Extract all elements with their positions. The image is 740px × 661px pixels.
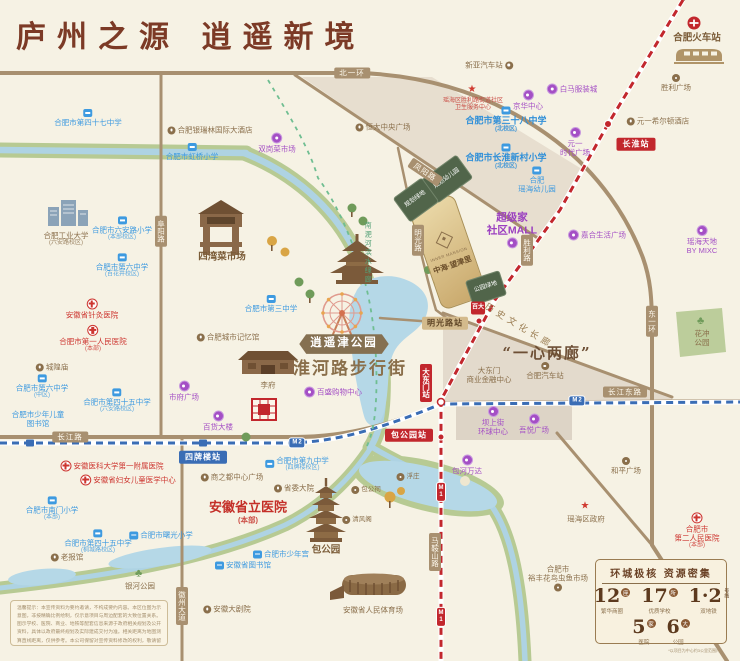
- label-hongqiao-primary: 合肥市虹桥小学: [166, 143, 219, 161]
- label-xiaoyaojin-park: 逍遥津公园: [299, 334, 389, 354]
- label-lifu: 李府: [261, 381, 276, 390]
- label-yaohai-kindergarten: 合肥瑶海幼儿园: [518, 167, 556, 194]
- label-shengwei: 省委大院: [274, 484, 314, 493]
- label-provincial-library: 安徽省图书馆: [215, 561, 271, 570]
- label-wuyue-plaza: 吾悦广场: [519, 414, 549, 435]
- label-baogongci: 包公祠: [351, 486, 381, 494]
- label-huachong-park: 花冲公园: [695, 317, 710, 347]
- label-shengli-plaza: 胜利广场: [661, 74, 691, 92]
- station-dadongmen: 大东门站: [420, 364, 432, 402]
- station-sipailou: 四牌楼站: [179, 451, 227, 464]
- label-no6-middle-central: 合肥市第六中学(中区): [16, 374, 69, 399]
- book-icon: [113, 388, 122, 396]
- label-school-3: 合肥市第三中学: [245, 295, 298, 313]
- book-icon: [118, 216, 127, 224]
- map-canvas: 庐州之源 逍遥新境 INNER MANSION 中海·望津里 规划幼儿园 规划绿…: [0, 0, 740, 661]
- label-children-library: 合肥市少年儿童图书馆: [12, 410, 65, 428]
- spot-icon: [51, 553, 59, 561]
- book-icon: [265, 460, 274, 468]
- label-xinya-bus: 新亚汽车站: [465, 61, 513, 70]
- road-beiyihuan: 北一环: [334, 68, 370, 79]
- shop-icon: [568, 230, 579, 241]
- book-icon: [533, 167, 542, 175]
- book-icon: [188, 143, 197, 151]
- label-nanmen-primary: 合肥市南门小学(本部): [26, 496, 79, 521]
- label-yinruilin-hotel: 合肥银瑞林国际大酒店: [168, 126, 253, 135]
- label-shifu-plaza: 市府广场: [169, 381, 199, 402]
- book-icon: [84, 109, 93, 117]
- stats-card-title: 环城极核 资源密集: [602, 565, 720, 584]
- stat-schools: 17所 优质学校: [641, 587, 677, 615]
- shop-icon: [506, 238, 517, 249]
- shop-icon: [696, 225, 707, 236]
- shop-icon: [179, 381, 190, 392]
- metro1-badge-south: M1: [436, 607, 446, 627]
- spot-icon: [622, 457, 630, 465]
- label-baihuo-building: 百货大楼: [203, 411, 233, 432]
- spot-icon: [201, 473, 209, 481]
- spot-icon: [541, 362, 549, 370]
- spot-icon: [505, 61, 513, 69]
- label-city-memory: 合肥城市记忆馆: [197, 333, 260, 342]
- cross-icon: [80, 475, 91, 486]
- spot-icon: [36, 363, 44, 371]
- spot-icon: [197, 333, 205, 341]
- metro2-badge-east: M2: [568, 395, 585, 406]
- cross-icon: [692, 512, 703, 523]
- label-siwan-market: 四湾菜市场: [198, 251, 246, 262]
- book-icon: [501, 144, 510, 152]
- label-yuanyi-times: 元一时代广场: [560, 127, 590, 157]
- label-hengda-plaza: 恒大中央广场: [356, 123, 411, 132]
- label-school-45a: 合肥市第四十五中学(六安路校区): [83, 388, 151, 413]
- label-grand-theater: 安徽大剧院: [203, 605, 251, 614]
- label-hfut: 合肥工业大学(六安路校区): [44, 231, 89, 247]
- label-hilton: 元一希尔顿酒店: [627, 117, 690, 126]
- label-riverside-corridor: 南淝河滨水绿廊: [363, 222, 371, 285]
- label-shuguang-primary: 合肥市曙光小学: [129, 531, 193, 540]
- book-icon: [215, 561, 224, 569]
- star-icon: [467, 86, 478, 97]
- road-fuyanglu: 阜阳路: [155, 216, 167, 247]
- shop-icon: [488, 406, 499, 417]
- page-title: 庐州之源 逍遥新境: [16, 12, 365, 56]
- shop-icon: [304, 387, 315, 398]
- label-no6-middle: 合肥市第六中学(百花井校区): [96, 253, 149, 278]
- book-icon: [38, 374, 47, 382]
- stat-metro-lines: 1·2号线 双地铁: [689, 587, 729, 615]
- shop-icon: [547, 84, 558, 95]
- label-dadongmen-finance: 大东门商业金融中心: [467, 366, 512, 384]
- spot-icon: [168, 126, 176, 134]
- label-school-47: 合肥市第四十七中学: [54, 109, 122, 127]
- label-zhenjiu-hospital: 安徽省针灸医院: [66, 299, 119, 320]
- book-icon: [253, 550, 262, 558]
- metro2-badge-west: M2: [288, 437, 305, 448]
- station-baogongyuan: 包公园站: [385, 429, 433, 442]
- road-huizhoudadao: 徽州大道: [176, 587, 188, 625]
- stat-business-circles: 12座 繁华商圈: [594, 587, 630, 615]
- baida-logo: 百大: [471, 302, 485, 315]
- cross-icon: [61, 461, 72, 472]
- label-hefei-railway: 合肥火车站: [673, 32, 721, 43]
- shop-icon: [462, 455, 473, 466]
- label-yufeng-market: 合肥市裕丰花鸟虫鱼市场: [528, 565, 588, 592]
- label-fuzhuang: 浮庄: [397, 473, 420, 481]
- book-icon: [118, 253, 127, 261]
- metro1-badge-north: M1: [436, 482, 446, 502]
- book-icon: [267, 295, 276, 303]
- disclaimer-text: 温馨提示：本宣传资料为要约邀请，不构成要约内容。本区位图为示意图，非按精确比例绘…: [10, 600, 168, 646]
- label-shuanggang-market: 双岗菜市场: [258, 133, 296, 154]
- label-youth-palace: 合肥市少年宫: [253, 550, 309, 559]
- book-icon: [129, 531, 138, 539]
- road-dongyihuan: 东一环: [646, 306, 658, 337]
- label-women-children-center: 安徽省妇女儿童医学中心: [80, 475, 176, 486]
- book-icon: [94, 529, 103, 537]
- cross-icon: [88, 325, 99, 336]
- label-heping-plaza: 和平广场: [611, 457, 641, 475]
- spot-icon: [203, 605, 211, 613]
- road-maanshanlu: 马鞍山路: [429, 533, 441, 571]
- spot-icon: [627, 117, 635, 125]
- label-jiahe-plaza: 嘉合生活广场: [568, 230, 626, 241]
- shop-icon: [529, 414, 540, 425]
- label-parkson: 百盛购物中心: [304, 387, 362, 398]
- label-school-9: 合肥市第九中学(四牌楼校区): [265, 456, 329, 472]
- label-anyi-hospital: 安徽医科大学第一附属医院: [61, 461, 164, 472]
- label-mixc: 瑶海天地BY MIXC: [687, 225, 718, 255]
- label-shangzhidu: 商之都中心广场: [201, 473, 264, 482]
- label-qingfengge: 清风阁: [342, 516, 372, 524]
- road-changjiangdonglu: 长江东路: [603, 387, 647, 398]
- label-luanlu-primary: 合肥市六安路小学(本部校区): [92, 216, 152, 241]
- stat-hospitals: 5家 医院: [632, 618, 655, 646]
- label-baogongyuan: 包公园: [312, 544, 341, 555]
- label-chenghuangmiao: 城隍庙: [36, 363, 69, 372]
- road-shenglilu: 胜利路: [521, 235, 533, 266]
- label-school-38: 合肥市第三十八中学(北校区): [465, 107, 546, 134]
- spot-icon: [342, 516, 350, 524]
- label-yaohai-gov: 瑶海区政府: [567, 503, 605, 524]
- project-logo-icon: [435, 231, 452, 248]
- label-school-45b: 合肥市第四十五中学(桐城路校区): [64, 529, 132, 554]
- label-stadium: 安徽省人民体育场: [343, 606, 403, 615]
- book-icon: [48, 496, 57, 504]
- station-mingguanglu: 明光路站: [422, 317, 468, 330]
- label-hefei-bus: 合肥汽车站: [526, 362, 564, 380]
- book-icon: [501, 107, 510, 115]
- map-labels: 庐州之源 逍遥新境 INNER MANSION 中海·望津里 规划幼儿园 规划绿…: [0, 0, 740, 661]
- label-yinhe-park: 银河公园: [125, 570, 155, 591]
- tree-icon: [697, 317, 707, 328]
- road-changjianglu: 长江路: [52, 432, 88, 443]
- spot-icon: [672, 74, 680, 82]
- label-baima-city: 白马服装城: [547, 84, 598, 95]
- cross-icon: [87, 299, 98, 310]
- station-changhuai: 长淮站: [617, 138, 656, 151]
- star-icon: [581, 503, 592, 514]
- label-huaihe-road: 淮河路步行街: [293, 359, 407, 379]
- spot-icon: [274, 484, 282, 492]
- spot-icon: [356, 123, 364, 131]
- label-first-people-hospital: 合肥市第一人民医院(本部): [59, 325, 127, 353]
- shop-icon: [570, 127, 581, 138]
- label-bashangjie: 坝上街环球中心: [478, 406, 508, 436]
- spot-icon: [397, 473, 405, 481]
- label-laobaoguan: 老报馆: [51, 553, 84, 562]
- stats-card-footnote: *以项目为中心约3公里范围内: [602, 648, 720, 654]
- spot-icon: [351, 486, 359, 494]
- spot-icon: [554, 584, 562, 592]
- shop-icon: [272, 133, 283, 144]
- tree-icon: [135, 570, 145, 581]
- shop-icon: [523, 90, 534, 101]
- label-provincial-hospital: 安徽省立医院(本部): [209, 500, 287, 525]
- label-second-people-hospital: 合肥市第二人民医院(本部): [675, 512, 720, 549]
- stat-parks: 6大 公园: [667, 618, 690, 646]
- label-baohe-wanda: 包河万达: [452, 455, 482, 476]
- stats-card: 环城极核 资源密集 12座 繁华商圈 17所 优质学校 1·2号线 双地铁 5家…: [595, 559, 727, 644]
- road-mingguanglu: 明光路: [412, 225, 424, 256]
- shop-icon: [213, 411, 224, 422]
